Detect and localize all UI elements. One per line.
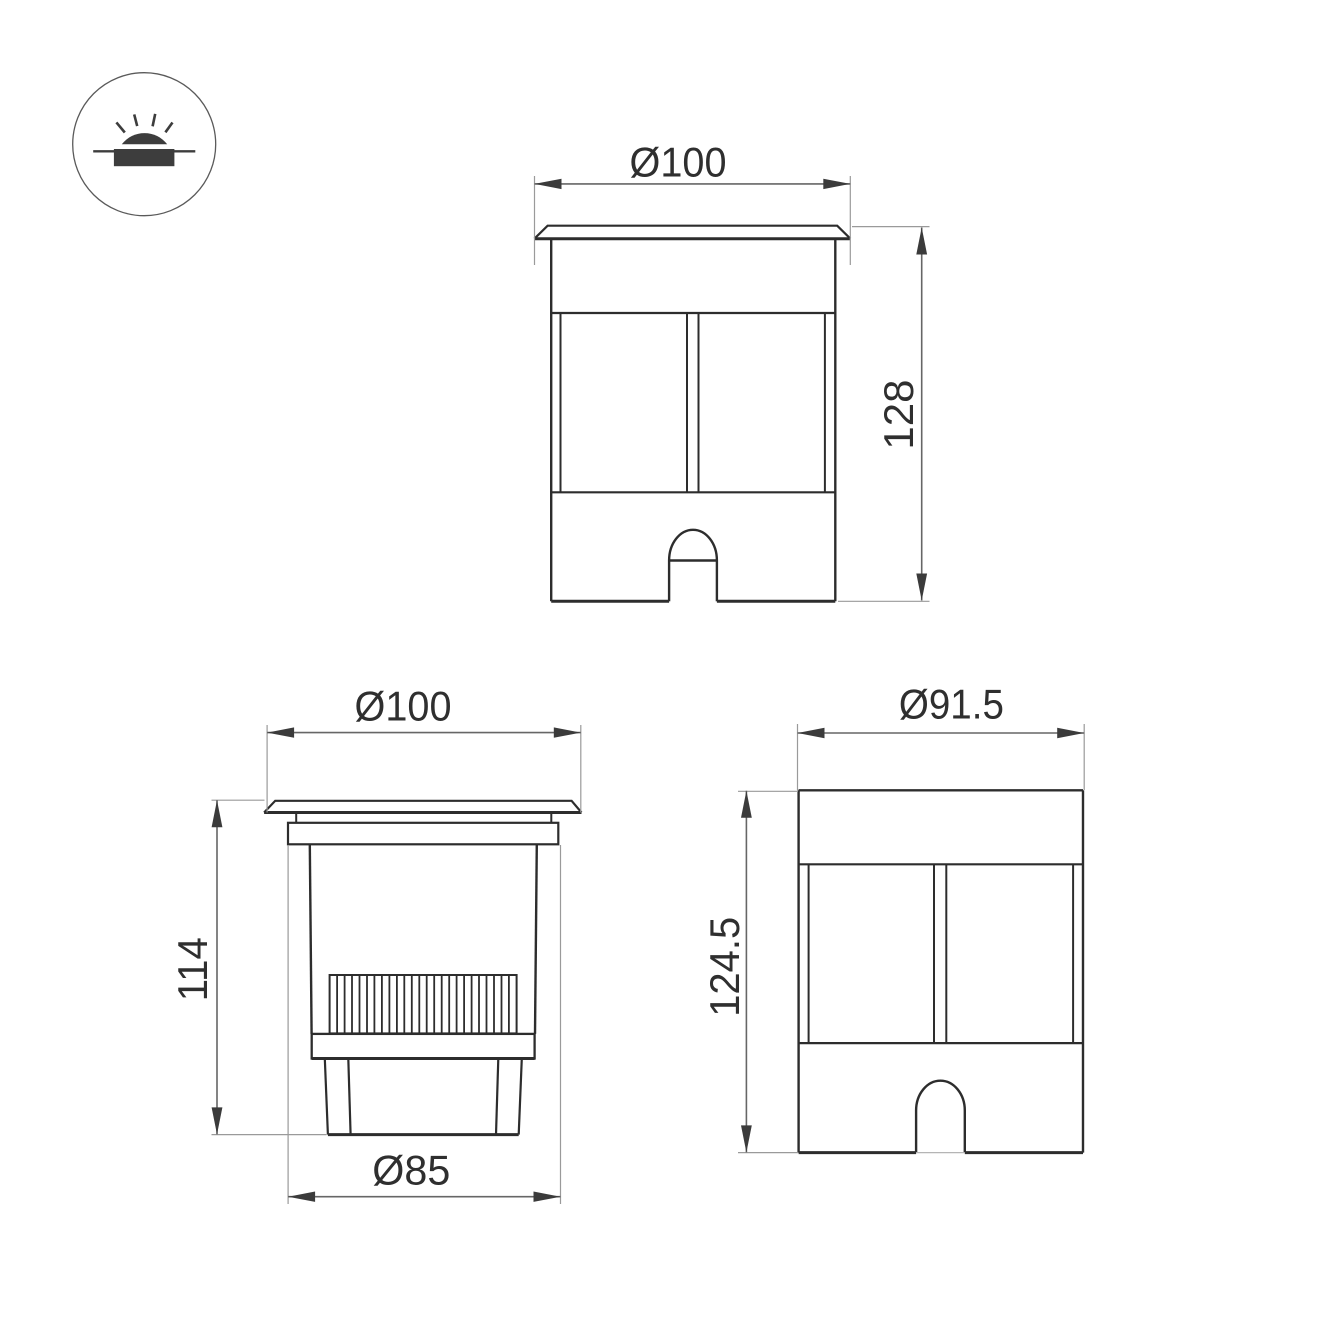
svg-text:Ø91.5: Ø91.5 <box>899 681 1004 728</box>
svg-text:Ø100: Ø100 <box>355 683 452 730</box>
svg-text:Ø85: Ø85 <box>372 1146 450 1193</box>
svg-text:114: 114 <box>169 937 216 1001</box>
svg-text:124.5: 124.5 <box>701 917 748 1017</box>
svg-text:Ø100: Ø100 <box>630 139 727 186</box>
svg-text:128: 128 <box>875 380 922 450</box>
